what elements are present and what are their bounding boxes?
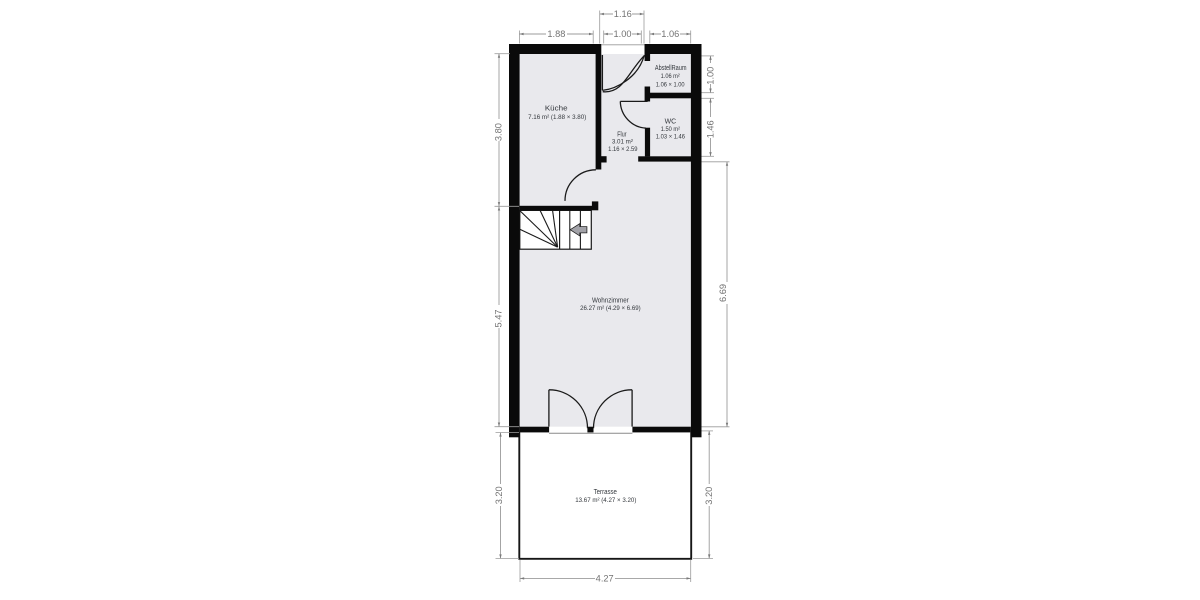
svg-text:3.01 m²: 3.01 m² [612,139,634,146]
svg-text:Küche: Küche [545,106,568,113]
svg-text:Wohnzimmer: Wohnzimmer [592,298,629,305]
svg-text:1.03 × 1.46: 1.03 × 1.46 [656,134,686,141]
svg-text:7.16 m² (1.88 × 3.80): 7.16 m² (1.88 × 3.80) [528,114,586,121]
svg-text:AbstellRaum: AbstellRaum [655,65,687,72]
svg-text:1.16: 1.16 [614,9,632,19]
svg-text:3.20: 3.20 [494,486,504,504]
svg-text:Flur: Flur [617,131,627,138]
svg-text:Terrasse: Terrasse [594,489,617,496]
svg-text:13.67 m² (4.27 × 3.20): 13.67 m² (4.27 × 3.20) [575,497,636,504]
svg-text:1.46: 1.46 [705,120,715,138]
svg-text:1.00: 1.00 [614,29,632,39]
svg-text:1.50 m²: 1.50 m² [661,126,681,133]
svg-text:1.06: 1.06 [661,29,679,39]
svg-text:1.00: 1.00 [705,67,715,85]
svg-text:6.69: 6.69 [718,284,728,302]
svg-text:5.47: 5.47 [494,310,504,328]
svg-text:1.16 × 2.59: 1.16 × 2.59 [608,146,638,153]
svg-text:1.06 × 1.00: 1.06 × 1.00 [656,81,685,88]
svg-text:3.20: 3.20 [704,487,714,505]
svg-text:3.80: 3.80 [494,123,504,141]
svg-text:4.27: 4.27 [596,573,614,583]
svg-text:WC: WC [665,119,677,126]
svg-text:1.06 m²: 1.06 m² [661,73,681,80]
svg-text:26.27 m² (4.29 × 6.69): 26.27 m² (4.29 × 6.69) [580,305,641,312]
svg-text:1.88: 1.88 [547,29,565,39]
